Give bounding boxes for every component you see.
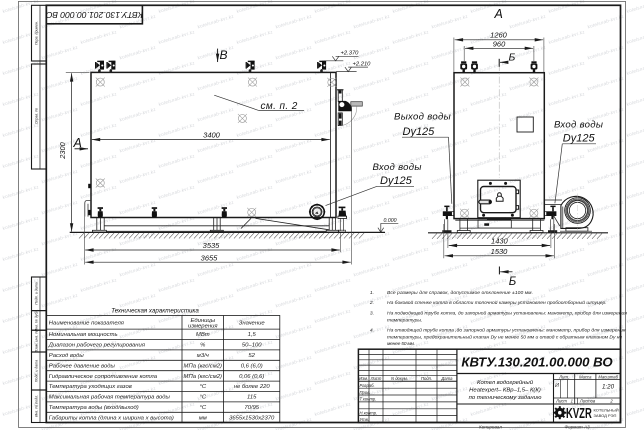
svg-text:4.: 4. bbox=[370, 328, 374, 334]
svg-text:Б: Б bbox=[509, 276, 517, 288]
svg-text:Листов: Листов bbox=[579, 399, 596, 404]
svg-text:Максимальная рабочая температу: Максимальная рабочая температура воды bbox=[49, 395, 171, 401]
svg-text:Техническая характеристика: Техническая характеристика bbox=[111, 308, 199, 315]
svg-text:по техническому заданию: по техническому заданию bbox=[469, 395, 542, 401]
svg-text:МПа (кгс/см2): МПа (кгс/см2) bbox=[184, 363, 223, 369]
svg-text:0,6 (6,0): 0,6 (6,0) bbox=[241, 363, 263, 369]
svg-text:менее 50 мм.: менее 50 мм. bbox=[387, 341, 415, 347]
svg-text:Формат А3: Формат А3 bbox=[565, 424, 591, 429]
svg-text:+2.210: +2.210 bbox=[353, 61, 372, 67]
svg-text:1260: 1260 bbox=[490, 31, 508, 40]
svg-text:Т.контр.: Т.контр. bbox=[360, 397, 377, 402]
svg-text:Инв. № подл.: Инв. № подл. bbox=[34, 395, 38, 417]
svg-text:0,06 (0,6): 0,06 (0,6) bbox=[239, 374, 264, 380]
svg-text:И: И bbox=[555, 383, 559, 389]
svg-text:115: 115 bbox=[247, 395, 257, 401]
svg-text:1430: 1430 bbox=[491, 237, 509, 246]
svg-text:Подп. и дата: Подп. и дата bbox=[34, 282, 38, 305]
svg-text:На боковой стенке котла в обла: На боковой стенке котла в области топочн… bbox=[387, 299, 607, 306]
svg-text:Выход воды: Выход воды bbox=[394, 112, 451, 123]
svg-text:+2.370: +2.370 bbox=[341, 51, 360, 57]
svg-text:70/95: 70/95 bbox=[244, 405, 259, 411]
svg-text:КВТУ.130.201.00.000 ВО: КВТУ.130.201.00.000 ВО bbox=[461, 354, 613, 369]
svg-text:Габариты котла (длина х ширина: Габариты котла (длина х ширина х высота) bbox=[49, 415, 174, 421]
svg-text:°С: °С bbox=[199, 405, 206, 411]
svg-text:Dy125: Dy125 bbox=[403, 126, 436, 138]
svg-text:Справ. №: Справ. № bbox=[34, 108, 38, 124]
svg-text:1: 1 bbox=[571, 399, 573, 404]
svg-text:Подп.: Подп. bbox=[421, 376, 432, 381]
svg-text:Пров.: Пров. bbox=[360, 390, 371, 395]
svg-text:1:20: 1:20 bbox=[602, 383, 615, 390]
svg-text:Изм.: Изм. bbox=[359, 376, 368, 381]
svg-text:Гидравлическое сопротивление к: Гидравлическое сопротивление котла bbox=[49, 374, 158, 380]
svg-text:м3/ч: м3/ч bbox=[197, 353, 209, 359]
svg-text:Вход воды: Вход воды bbox=[373, 162, 422, 173]
svg-text:52: 52 bbox=[248, 353, 255, 359]
svg-text:%: % bbox=[200, 343, 205, 349]
svg-text:2300: 2300 bbox=[58, 141, 67, 159]
svg-text:3655: 3655 bbox=[201, 253, 219, 262]
svg-text:КВТУ.130.201.00.000 ВО: КВТУ.130.201.00.000 ВО bbox=[45, 10, 142, 20]
svg-text:1530: 1530 bbox=[491, 247, 509, 256]
svg-text:Значение: Значение bbox=[239, 320, 266, 326]
svg-text:Dy125: Dy125 bbox=[563, 132, 596, 144]
svg-text:не более 220: не более 220 bbox=[234, 384, 271, 390]
svg-text:3400: 3400 bbox=[203, 131, 221, 140]
svg-text:А: А bbox=[494, 7, 503, 21]
svg-text:Наименование показателя: Наименование показателя bbox=[49, 320, 125, 326]
svg-text:Номинальная мощность: Номинальная мощность bbox=[49, 332, 118, 338]
svg-text:Лист: Лист bbox=[555, 399, 567, 404]
svg-text:3655х1530х2370: 3655х1530х2370 bbox=[229, 415, 275, 421]
svg-text:°С: °С bbox=[199, 395, 206, 401]
svg-text:На отводящей трубе котла ,до з: На отводящей трубе котла ,до запорной ар… bbox=[387, 327, 626, 334]
svg-text:Взам. инв. №: Взам. инв. № bbox=[34, 330, 38, 352]
svg-text:Инв. № дубл.: Инв. № дубл. bbox=[34, 309, 38, 331]
svg-text:50–100: 50–100 bbox=[242, 343, 262, 349]
svg-text:Dy125: Dy125 bbox=[380, 175, 413, 187]
svg-text:МВт: МВт bbox=[196, 332, 210, 338]
svg-text:°С: °С bbox=[199, 384, 206, 390]
svg-text:1,5: 1,5 bbox=[248, 332, 257, 338]
svg-text:ЗАВОД РЭП: ЗАВОД РЭП bbox=[594, 413, 617, 418]
svg-text:Дата: Дата bbox=[440, 376, 453, 381]
svg-text:температуры, предохранительный: температуры, предохранительный клапан Dу… bbox=[387, 334, 623, 341]
svg-text:МПа (кгс/см2): МПа (кгс/см2) bbox=[184, 374, 223, 380]
svg-text:На подводящей трубе котла, до: На подводящей трубе котла, до запорной а… bbox=[387, 310, 627, 317]
svg-text:Лист: Лист bbox=[370, 376, 382, 381]
svg-text:Разраб.: Разраб. bbox=[360, 383, 375, 388]
svg-text:температуры.: температуры. bbox=[387, 319, 422, 324]
svg-text:Все размеры для справок, допус: Все размеры для справок, допустимое откл… bbox=[387, 290, 533, 296]
svg-text:960: 960 bbox=[493, 39, 506, 48]
svg-text:Heatexpert– КВр–1,5– К(К): Heatexpert– КВр–1,5– К(К) bbox=[469, 388, 541, 394]
svg-text:А: А bbox=[73, 136, 82, 150]
svg-text:мм: мм bbox=[199, 415, 207, 421]
svg-text:Лит.: Лит. bbox=[558, 374, 569, 379]
svg-text:Расход воды: Расход воды bbox=[49, 353, 85, 359]
svg-text:KVZR: KVZR bbox=[566, 406, 592, 422]
svg-text:КОТЕЛЬНЫЙ: КОТЕЛЬНЫЙ bbox=[594, 408, 619, 413]
svg-text:см. п. 2: см. п. 2 bbox=[261, 101, 298, 112]
svg-text:Диапазон рабочего регулировани: Диапазон рабочего регулирования bbox=[48, 343, 146, 349]
svg-text:Б: Б bbox=[509, 52, 516, 64]
svg-text:N докум.: N докум. bbox=[391, 376, 408, 381]
svg-text:3.: 3. bbox=[370, 311, 374, 317]
svg-text:Масса: Масса bbox=[579, 374, 592, 379]
svg-text:Утв.: Утв. bbox=[360, 417, 370, 422]
svg-text:Подп. и дата: Подп. и дата bbox=[34, 360, 38, 383]
svg-text:Рабочее давление воды: Рабочее давление воды bbox=[49, 363, 116, 369]
svg-text:Перв. примен.: Перв. примен. bbox=[34, 21, 38, 45]
svg-text:1.: 1. bbox=[370, 290, 374, 296]
svg-text:Масштаб: Масштаб bbox=[598, 374, 618, 379]
svg-text:измерения: измерения bbox=[188, 324, 218, 330]
svg-text:3535: 3535 bbox=[203, 241, 221, 250]
svg-text:Н.контр.: Н.контр. bbox=[360, 410, 378, 415]
svg-text:0.000: 0.000 bbox=[384, 218, 397, 224]
svg-text:Температура уходящих газов: Температура уходящих газов bbox=[49, 384, 132, 390]
svg-text:Котел водогрейный: Котел водогрейный bbox=[477, 379, 534, 386]
svg-text:Вход воды: Вход воды bbox=[554, 120, 603, 131]
svg-text:Температура воды (вход/выход): Температура воды (вход/выход) bbox=[49, 405, 139, 411]
svg-text:В: В bbox=[220, 48, 228, 62]
svg-text:Копировал: Копировал bbox=[479, 424, 502, 429]
svg-text:2.: 2. bbox=[369, 300, 374, 306]
